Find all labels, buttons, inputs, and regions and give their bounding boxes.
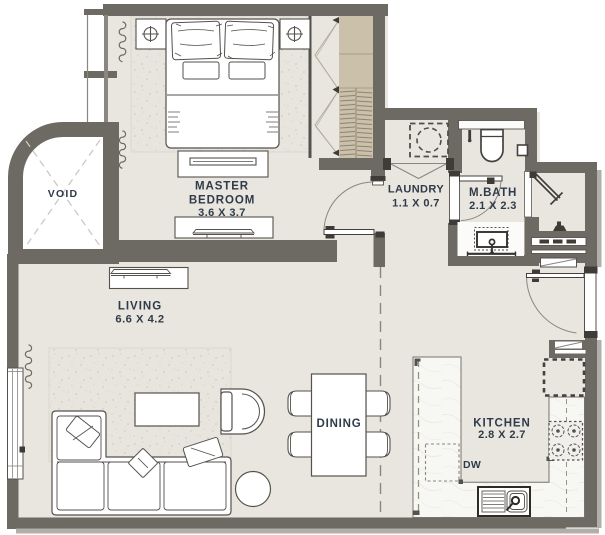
svg-text:1.1 X 0.7: 1.1 X 0.7 <box>392 198 440 210</box>
svg-text:DINING: DINING <box>316 418 361 430</box>
svg-text:LIVING: LIVING <box>118 301 162 313</box>
svg-text:6.6 X 4.2: 6.6 X 4.2 <box>115 314 164 326</box>
svg-text:3.6 X 3.7: 3.6 X 3.7 <box>198 207 246 219</box>
svg-text:BEDROOM: BEDROOM <box>189 195 255 207</box>
svg-text:MASTER: MASTER <box>195 181 249 193</box>
svg-text:VOID: VOID <box>48 188 78 200</box>
svg-text:2.8 X 2.7: 2.8 X 2.7 <box>478 429 526 441</box>
svg-text:M.BATH: M.BATH <box>469 187 517 199</box>
svg-text:KITCHEN: KITCHEN <box>473 418 530 430</box>
svg-text:DW: DW <box>463 459 481 471</box>
svg-text:2.1 X 2.3: 2.1 X 2.3 <box>469 200 517 212</box>
svg-text:LAUNDRY: LAUNDRY <box>388 184 444 196</box>
